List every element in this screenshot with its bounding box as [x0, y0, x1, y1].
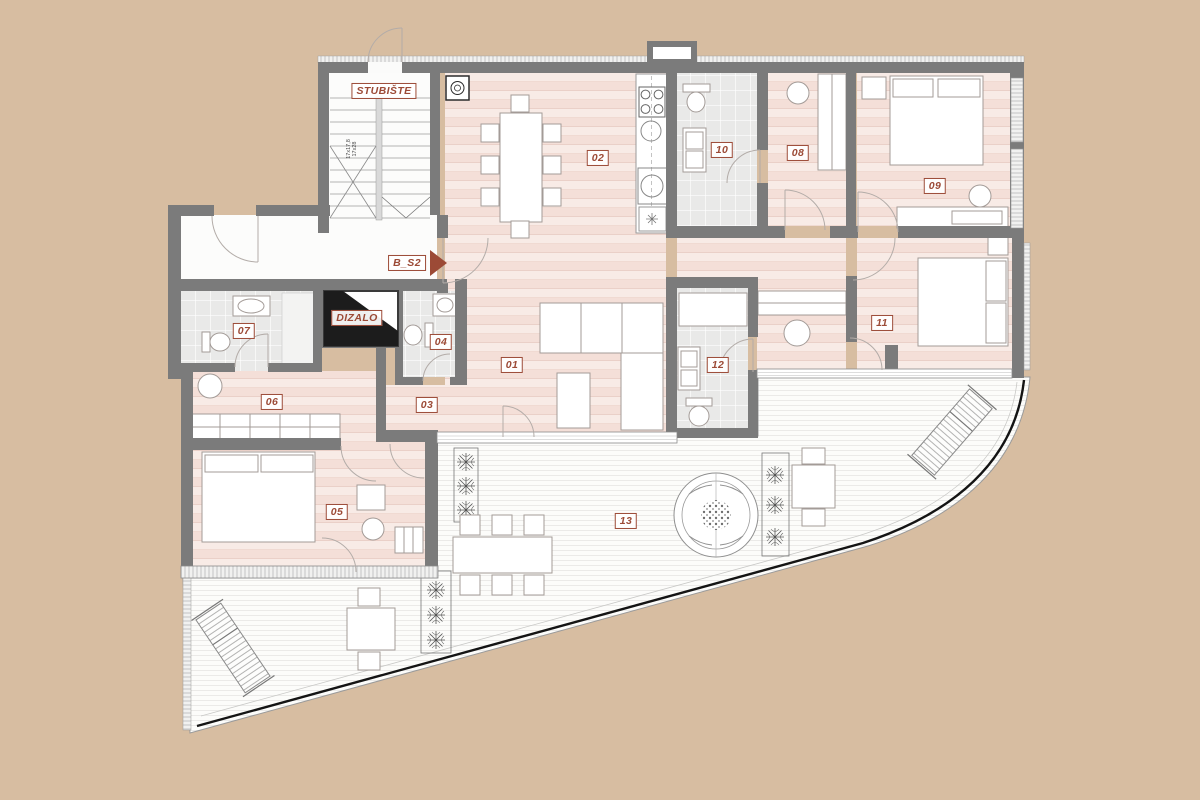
chair [198, 374, 222, 398]
toilet-icon [689, 406, 709, 426]
room-label-09: 09 [924, 178, 946, 194]
room-label-01: 01 [501, 357, 523, 373]
room-label-08: 08 [787, 145, 809, 161]
closet-row [190, 414, 340, 440]
room-label-10: 10 [711, 142, 733, 158]
room-label-05: 05 [326, 504, 348, 520]
jacuzzi-icon [674, 473, 758, 557]
toilet-icon [210, 333, 230, 351]
toilet-icon [687, 92, 705, 112]
desk [357, 485, 385, 510]
room-label-13: 13 [615, 513, 637, 529]
room-label-07: 07 [233, 323, 255, 339]
window [1011, 149, 1023, 228]
room-label-12: 12 [707, 357, 729, 373]
coffee-table [557, 373, 590, 428]
room-label-04: 04 [430, 334, 452, 350]
room-label-03: 03 [416, 397, 438, 413]
floor-plan: STUBIŠTE DIZALO B_S2 17x17,8 17x28 01020… [0, 0, 1200, 800]
shelf [395, 527, 423, 553]
kitchen [636, 74, 668, 233]
room-label-11: 11 [871, 315, 893, 331]
window [1024, 243, 1030, 370]
outdoor-dining-set [453, 515, 552, 595]
floor-plan-svg [0, 0, 1200, 800]
round-table [784, 320, 810, 346]
tub-icon [679, 293, 747, 326]
elevator-label: DIZALO [331, 310, 382, 326]
unit-label: B_S2 [388, 255, 426, 271]
room-label-06: 06 [261, 394, 283, 410]
chimney [650, 44, 694, 62]
window [1011, 78, 1023, 142]
washing-machine-icon [446, 76, 469, 100]
terrace-edge-hatch [183, 578, 191, 730]
room-label-02: 02 [587, 150, 609, 166]
toilet-icon [404, 325, 422, 345]
stool [787, 82, 809, 104]
staircase-label: STUBIŠTE [351, 83, 416, 99]
stair-dimension-note: 17x17,8 17x28 [346, 139, 358, 159]
